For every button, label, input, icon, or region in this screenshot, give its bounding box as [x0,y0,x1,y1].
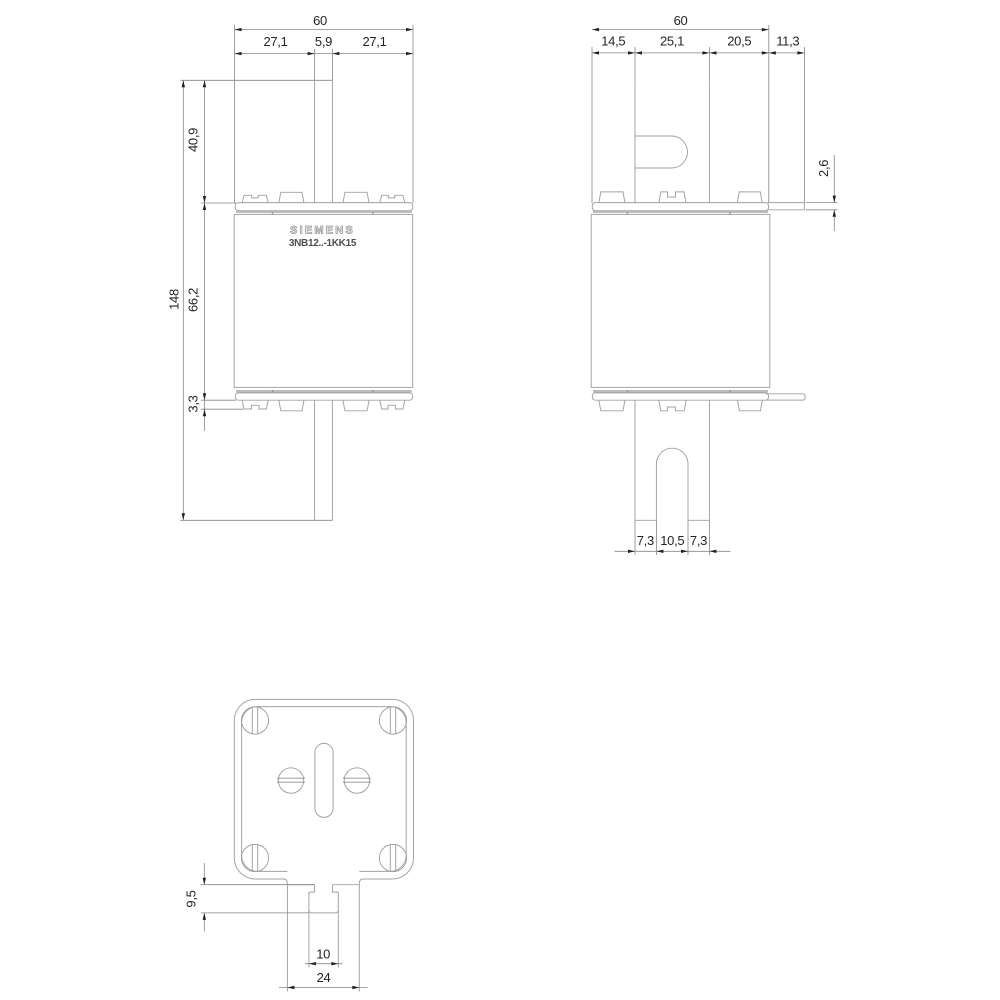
svg-text:11,3: 11,3 [776,34,799,49]
svg-text:5,9: 5,9 [315,34,332,49]
svg-text:7,3: 7,3 [637,533,654,548]
svg-text:27,1: 27,1 [362,34,386,49]
svg-text:3,3: 3,3 [186,395,201,412]
svg-text:SIEMENS: SIEMENS [290,225,355,237]
svg-text:25,1: 25,1 [660,34,684,49]
svg-text:20,5: 20,5 [727,34,751,49]
svg-text:7,3: 7,3 [690,533,707,548]
svg-text:24: 24 [317,970,331,985]
svg-text:9,5: 9,5 [184,890,199,907]
svg-text:2,6: 2,6 [816,160,831,177]
svg-text:3NB12..-1KK15: 3NB12..-1KK15 [289,238,357,249]
svg-text:40,9: 40,9 [186,128,201,152]
svg-text:10,5: 10,5 [660,533,684,548]
svg-text:14,5: 14,5 [601,34,625,49]
svg-text:66,2: 66,2 [186,288,201,312]
svg-text:27,1: 27,1 [263,34,287,49]
svg-text:60: 60 [313,13,327,28]
svg-text:10: 10 [316,947,330,962]
svg-text:60: 60 [674,13,688,28]
svg-text:148: 148 [167,289,182,310]
